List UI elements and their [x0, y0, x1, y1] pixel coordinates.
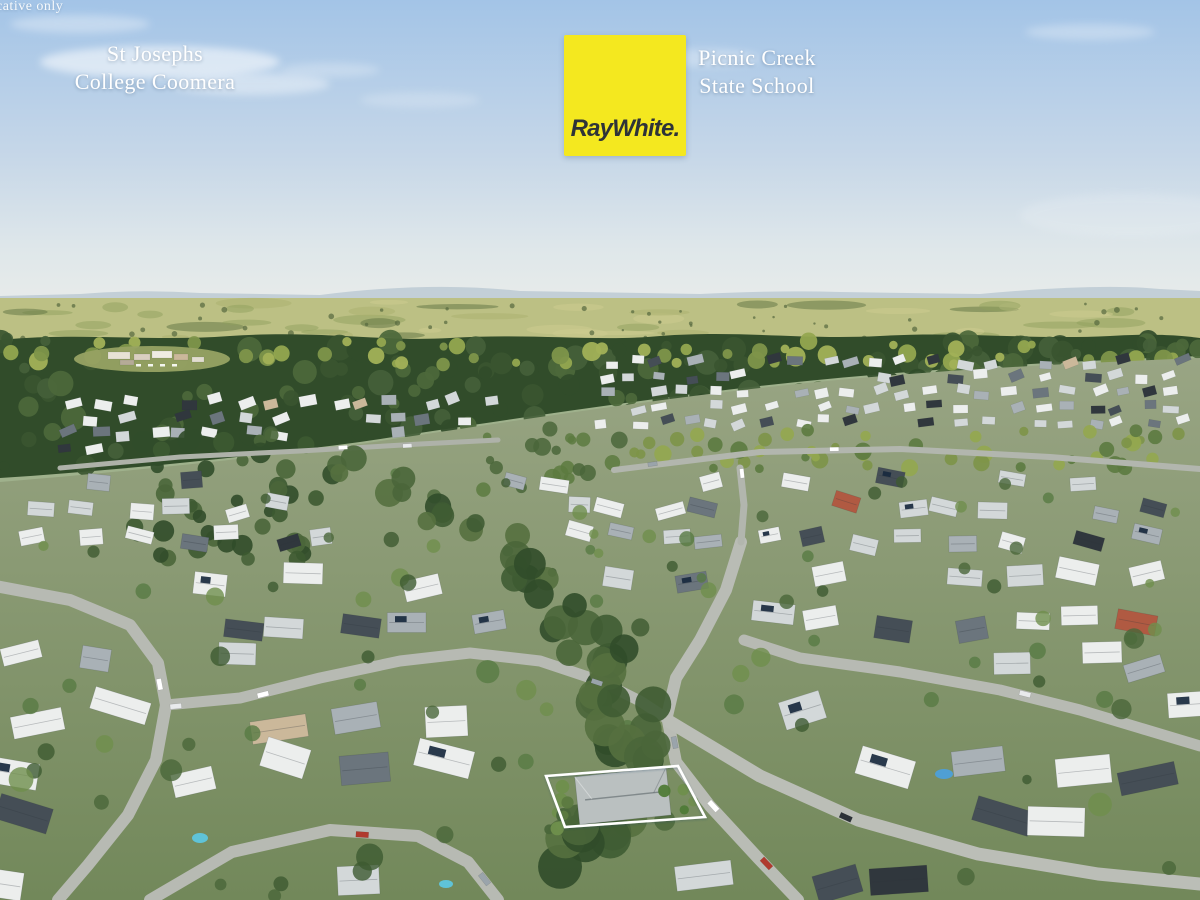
aerial-photo: cative only St Josephs College Coomera P… [0, 0, 1200, 900]
raywhite-logo-signboard: RayWhite. [564, 35, 686, 156]
raywhite-logo-text: RayWhite. [571, 115, 680, 156]
landmark-label-line: St Josephs [5, 40, 305, 68]
watermark-text: cative only [0, 0, 63, 15]
property-boundary-outline [546, 766, 705, 827]
landmark-label-line: College Coomera [5, 68, 305, 96]
landmark-label-st-josephs: St Josephs College Coomera [5, 40, 305, 96]
